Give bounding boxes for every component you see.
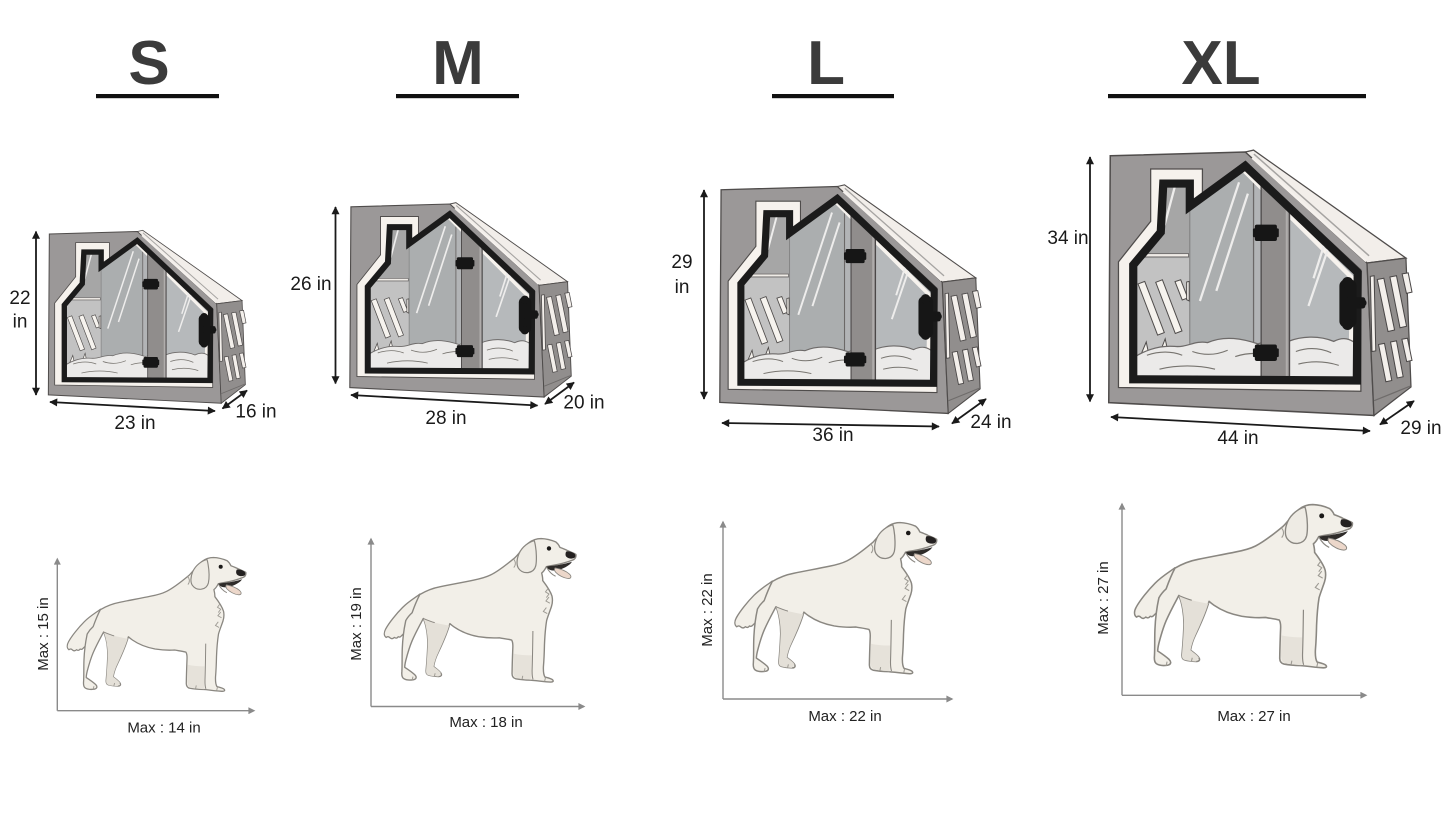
svg-text:S: S <box>128 29 169 98</box>
svg-text:in: in <box>675 277 690 298</box>
svg-text:M: M <box>432 29 484 98</box>
svg-text:29: 29 <box>671 252 692 273</box>
svg-text:23 in: 23 in <box>114 413 155 434</box>
svg-text:26 in: 26 in <box>290 274 331 295</box>
svg-text:36 in: 36 in <box>812 425 853 446</box>
svg-text:Max : 14 in: Max : 14 in <box>127 720 200 737</box>
svg-text:34 in: 34 in <box>1047 228 1088 249</box>
svg-text:Max : 27 in: Max : 27 in <box>1217 708 1290 725</box>
svg-text:Max : 15 in: Max : 15 in <box>35 597 52 670</box>
svg-text:Max : 19 in: Max : 19 in <box>348 587 365 660</box>
svg-text:Max : 22 in: Max : 22 in <box>808 708 881 725</box>
svg-text:20 in: 20 in <box>563 393 604 414</box>
svg-text:28 in: 28 in <box>425 408 466 429</box>
svg-text:Max : 27 in: Max : 27 in <box>1095 561 1112 634</box>
svg-text:L: L <box>807 29 845 98</box>
svg-text:29 in: 29 in <box>1400 418 1441 439</box>
svg-text:24 in: 24 in <box>970 412 1011 433</box>
svg-text:22: 22 <box>9 288 30 309</box>
svg-text:Max : 18 in: Max : 18 in <box>449 714 522 731</box>
svg-text:44 in: 44 in <box>1217 428 1258 449</box>
svg-text:in: in <box>13 312 28 333</box>
svg-text:16 in: 16 in <box>235 402 276 423</box>
svg-text:Max : 22 in: Max : 22 in <box>699 573 716 646</box>
svg-text:XL: XL <box>1181 29 1260 98</box>
